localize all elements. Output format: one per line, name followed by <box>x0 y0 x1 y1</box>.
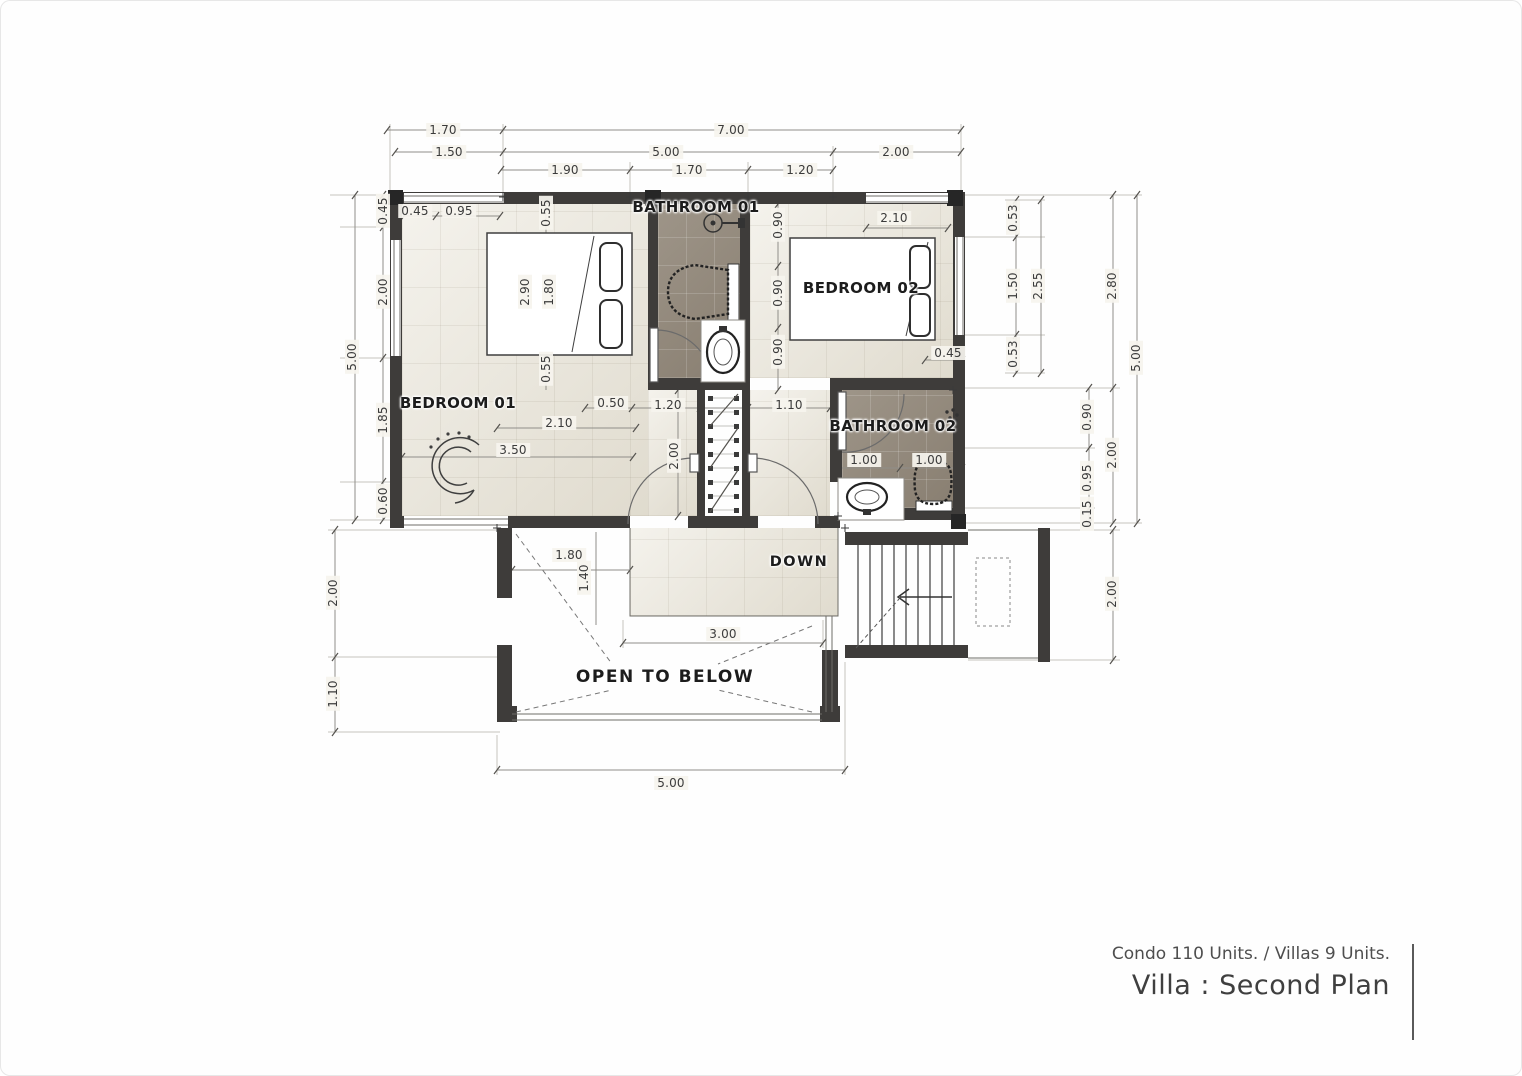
dimension-label: 2.00 <box>1105 577 1119 611</box>
dimension-label: 0.90 <box>771 208 785 242</box>
dimension-label: 2.00 <box>879 145 913 159</box>
bedroom-02-door-arc <box>752 458 818 524</box>
plan-title: Villa : Second Plan <box>1112 970 1390 1001</box>
dimension-label: 1.40 <box>577 561 591 595</box>
dimension-label: 5.00 <box>1129 341 1143 375</box>
dimension-label: 1.50 <box>1006 269 1020 303</box>
dimension-label: 1.20 <box>783 163 817 177</box>
fixture-shower-bath1 <box>704 214 745 232</box>
pillow <box>910 294 930 336</box>
bedroom-01-door-leaf <box>690 454 699 472</box>
dimension-label: 1.10 <box>772 398 806 412</box>
furniture-armchair <box>429 431 479 503</box>
dimension-label: 2.80 <box>1105 269 1119 303</box>
dimension-label: 0.50 <box>594 396 628 410</box>
dimension-label: 1.90 <box>548 163 582 177</box>
dimension-label: 7.00 <box>714 123 748 137</box>
dimension-label: 3.00 <box>706 627 740 641</box>
room-label-bedroom-02: BEDROOM 02 <box>803 279 919 297</box>
dimension-label: 1.50 <box>432 145 466 159</box>
dimension-label: 0.15 <box>1080 497 1094 531</box>
room-label-bathroom-01: BATHROOM 01 <box>632 198 759 216</box>
stair-void-dashed <box>976 558 1010 626</box>
dimension-label: 1.70 <box>672 163 706 177</box>
dimension-label: 2.10 <box>542 416 576 430</box>
room-label-bathroom-02: BATHROOM 02 <box>829 417 956 435</box>
dimension-label: 0.55 <box>539 196 553 230</box>
furniture-bed-01 <box>487 233 632 355</box>
pillow <box>600 243 622 291</box>
bedroom-01-door-arc <box>628 458 694 524</box>
dimension-label: 0.90 <box>771 335 785 369</box>
dimension-label: 1.80 <box>542 275 556 309</box>
dimension-label: 5.00 <box>649 145 683 159</box>
room-label-open-to-below: OPEN TO BELOW <box>576 667 754 687</box>
dimension-label: 0.53 <box>1006 201 1020 235</box>
room-label-down: DOWN <box>770 554 829 570</box>
dimension-label: 0.53 <box>1006 337 1020 371</box>
dimension-label: 2.90 <box>518 275 532 309</box>
dimension-label: 0.90 <box>771 276 785 310</box>
dimension-label: 0.55 <box>539 352 553 386</box>
dimension-label: 2.00 <box>667 439 681 473</box>
dimension-label: 1.85 <box>376 403 390 437</box>
fixture-toilet-bath1 <box>668 264 739 320</box>
dimension-label: 1.70 <box>426 123 460 137</box>
dimension-label: 1.00 <box>912 453 946 467</box>
dimension-label: 2.55 <box>1031 269 1045 303</box>
dimension-label: 0.45 <box>398 204 432 218</box>
project-units-text: Condo 110 Units. / Villas 9 Units. <box>1112 944 1390 964</box>
fixture-basin-bath2 <box>838 478 904 520</box>
pillow <box>600 300 622 348</box>
stairs-direction-arrow <box>898 589 952 605</box>
bathroom-01-door-leaf <box>650 328 658 382</box>
dimension-label: 2.00 <box>376 275 390 309</box>
dimension-label: 0.45 <box>376 194 390 228</box>
dimension-label: 1.00 <box>847 453 881 467</box>
dimension-label: 2.00 <box>1105 438 1119 472</box>
dimension-label: 0.95 <box>1080 461 1094 495</box>
dimension-label: 0.60 <box>376 484 390 518</box>
stairs <box>856 545 1010 648</box>
dimension-label: 0.45 <box>931 346 965 360</box>
dimension-label: 0.90 <box>1080 400 1094 434</box>
room-label-bedroom-01: BEDROOM 01 <box>400 394 516 412</box>
dimension-label: 1.80 <box>552 548 586 562</box>
dimension-label: 2.00 <box>326 576 340 610</box>
dimension-label: 2.10 <box>877 211 911 225</box>
bedroom-02-door-leaf <box>748 454 757 472</box>
dimension-label: 1.20 <box>651 398 685 412</box>
plan-linework <box>0 0 1522 1076</box>
dimension-label: 3.50 <box>496 443 530 457</box>
dimension-label: 5.00 <box>345 340 359 374</box>
title-divider <box>1412 944 1414 1040</box>
floor-plan-canvas: Condo 110 Units. / Villas 9 Units. Villa… <box>0 0 1522 1076</box>
dimension-label: 5.00 <box>654 776 688 790</box>
dimension-label: 0.95 <box>442 204 476 218</box>
stair-void-railing <box>708 394 739 513</box>
title-block: Condo 110 Units. / Villas 9 Units. Villa… <box>1112 944 1390 1001</box>
fixture-basin-bath1 <box>701 320 745 382</box>
dimension-label: 1.10 <box>326 677 340 711</box>
